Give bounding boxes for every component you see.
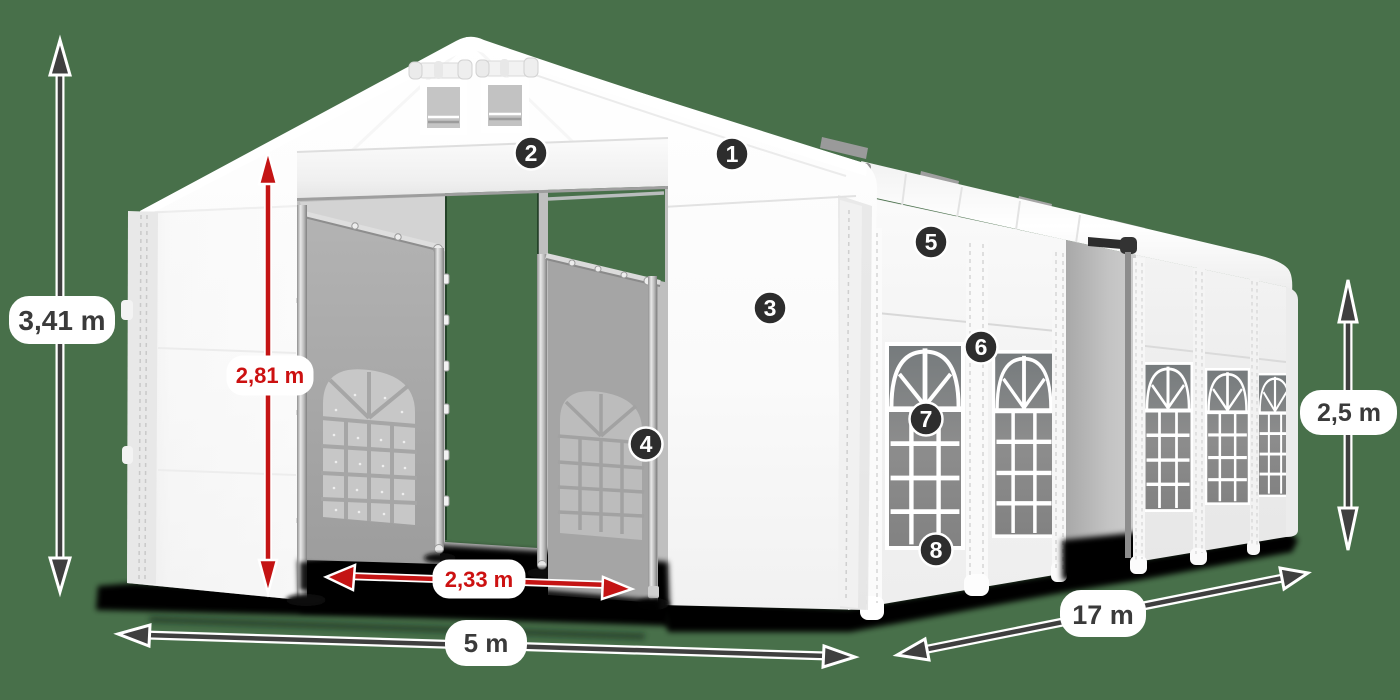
svg-text:4: 4 bbox=[640, 431, 653, 457]
svg-text:2,81 m: 2,81 m bbox=[236, 363, 305, 388]
svg-text:6: 6 bbox=[975, 334, 988, 360]
svg-text:5: 5 bbox=[925, 229, 938, 255]
svg-text:3,41 m: 3,41 m bbox=[18, 305, 105, 336]
svg-text:17 m: 17 m bbox=[1072, 600, 1134, 630]
svg-text:2: 2 bbox=[525, 140, 538, 166]
svg-text:2,33 m: 2,33 m bbox=[445, 567, 514, 592]
svg-text:5 m: 5 m bbox=[464, 628, 509, 658]
svg-text:1: 1 bbox=[726, 141, 739, 167]
svg-text:7: 7 bbox=[920, 406, 933, 432]
svg-text:3: 3 bbox=[764, 295, 777, 321]
svg-text:8: 8 bbox=[930, 537, 943, 563]
svg-text:2,5 m: 2,5 m bbox=[1317, 399, 1381, 427]
